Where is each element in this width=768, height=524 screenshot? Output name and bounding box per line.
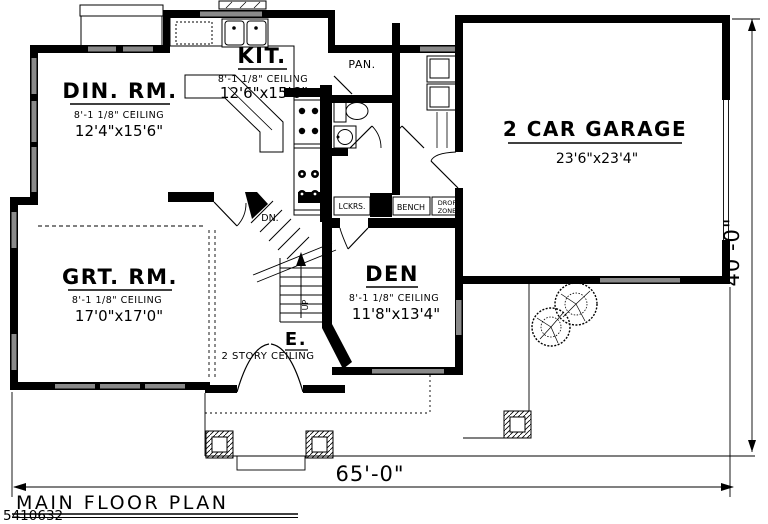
shrub-icon [532, 308, 570, 346]
lockers-label: LCKRS. [339, 202, 366, 211]
porch-column-icon [504, 411, 531, 438]
bench-label: BENCH [397, 203, 425, 212]
room-ceiling-entry: 2 STORY CEILING [222, 351, 315, 362]
room-size-garage: 23'6"x23'4" [556, 151, 638, 167]
room-label-garage: 2 CAR GARAGE [503, 117, 687, 141]
dim-depth-label: 40'-0" [720, 217, 744, 286]
room-size-den: 11'8"x13'4" [352, 305, 440, 323]
room-label-kitchen: KIT. [237, 44, 286, 68]
room-label-pantry: PAN. [348, 58, 375, 71]
kitchen-sink-icon [222, 19, 268, 47]
room-label-great-room: GRT. RM. [62, 265, 178, 289]
room-size-dining: 12'4"x15'6" [75, 122, 163, 140]
porch-column-icon [306, 431, 333, 458]
room-ceiling-dining: 8'-1 1/8" CEILING [74, 110, 164, 121]
room-size-great-room: 17'0"x17'0" [75, 307, 163, 325]
shrub-icon [555, 283, 597, 325]
porch-patio [205, 284, 755, 470]
title-block: MAIN FLOOR PLAN 5410632 [3, 492, 298, 524]
drop-zone-label-line2: ZONE [438, 207, 457, 215]
room-ceiling-great-room: 8'-1 1/8" CEILING [72, 295, 162, 306]
floor-plan-canvas: 40'-0" 65'-0" DIN. RM. 8'-1 1/8" CEILING… [0, 0, 768, 524]
windows [12, 12, 681, 389]
room-label-dining: DIN. RM. [62, 79, 177, 103]
stairs-up-label: UP [301, 299, 310, 310]
watermark-number: 5410632 [3, 508, 63, 524]
room-ceiling-den: 8'-1 1/8" CEILING [349, 293, 439, 304]
drop-zone-label-line1: DROP [438, 199, 457, 207]
bay-window-dining [80, 5, 163, 45]
toilet-icon [334, 100, 368, 122]
room-size-kitchen: 12'6"x15'6" [220, 84, 308, 102]
room-label-entry: E. [285, 329, 307, 350]
box-window-kitchen [219, 1, 266, 9]
room-label-den: DEN [365, 262, 419, 286]
stairs-down-label: DN. [261, 213, 278, 224]
washer-dryer-icons [427, 56, 457, 148]
dim-width-label: 65'-0" [335, 462, 404, 486]
floor-plan: 40'-0" 65'-0" DIN. RM. 8'-1 1/8" CEILING… [0, 0, 768, 524]
porch-column-icon [206, 431, 233, 458]
